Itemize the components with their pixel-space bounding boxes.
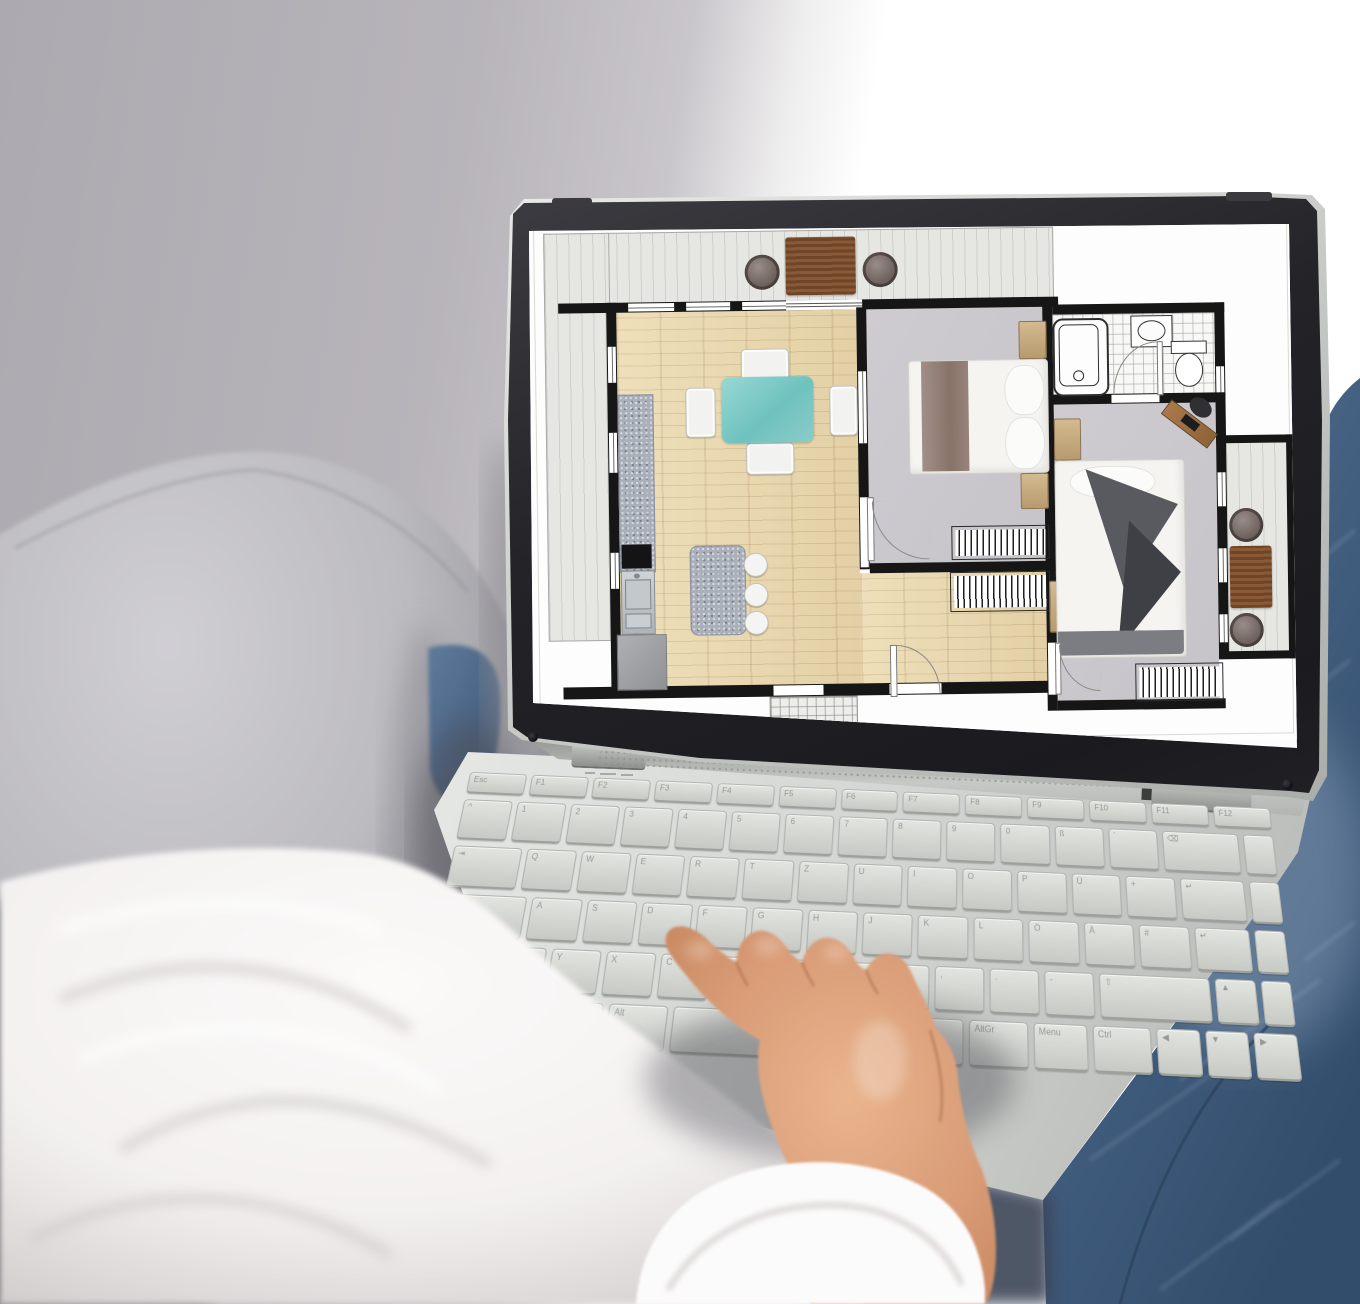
window (686, 302, 730, 311)
keyboard-key: A (525, 897, 583, 943)
keyboard-key: Ctrl (413, 995, 487, 1045)
window (608, 347, 617, 383)
keyboard-key (1260, 981, 1296, 1028)
keyboard-key (1248, 881, 1283, 925)
terrace-sliding-door (786, 299, 862, 310)
keyboard-key: Win (543, 1001, 604, 1050)
bedroom2-bed (1054, 459, 1187, 659)
keyboard-key: - (1044, 971, 1095, 1019)
balcony-table (1230, 546, 1273, 609)
window (1219, 548, 1227, 582)
dining-chair (685, 387, 716, 437)
nightstand (1018, 321, 1047, 359)
keyboard-key: H (805, 910, 858, 956)
keyboard-key: Menu (1033, 1023, 1088, 1073)
keyboard-key: ▶ (1254, 1033, 1303, 1083)
bathtub-drain (1073, 370, 1084, 381)
keyboard-key: ▲ (1215, 978, 1260, 1025)
window (1219, 614, 1227, 642)
keyboard-key: G (749, 907, 803, 953)
bedroom1-bed (908, 359, 1050, 475)
basin-bowl (1137, 320, 1165, 341)
keyboard-key (1254, 930, 1290, 975)
keyboard-key: P (1017, 871, 1068, 915)
window (611, 553, 620, 589)
keyboard-key: ◀ (1156, 1028, 1203, 1077)
keyboard-key: J (861, 912, 913, 958)
keyboard-key: # (1139, 925, 1192, 971)
keyboard-key: F (693, 905, 748, 951)
balcony-wall-top (1216, 434, 1294, 443)
keyboard-key: Alt (603, 1003, 668, 1053)
keyboard-key: R (686, 856, 740, 900)
keyboard-key: T (741, 858, 794, 902)
radiator (950, 571, 1051, 612)
keyboard-key: < (490, 946, 548, 993)
dining-chair (746, 442, 794, 475)
kitchen-island (689, 545, 746, 636)
keyboard-key: ▼ (1205, 1030, 1253, 1079)
lid-bumper (552, 198, 592, 207)
pillow (1004, 365, 1045, 416)
sink-basin (625, 579, 651, 609)
window (1218, 472, 1226, 506)
nightstand (1054, 418, 1082, 460)
keyboard-key: V (712, 956, 766, 1003)
lid-bumper (1226, 192, 1272, 201)
balcony-wall-bottom (1219, 650, 1297, 659)
laptop-screen-assembly (500, 190, 1330, 850)
keyboard-key (669, 1006, 964, 1066)
keyboard-key: . (990, 968, 1040, 1016)
window (609, 433, 618, 473)
keyboard-key: ⇧ (1099, 973, 1214, 1024)
entry-door-opening (773, 685, 823, 696)
terrace-deck-table (785, 236, 856, 295)
keyboard-key: Fn (483, 998, 545, 1047)
keyboard-key: X (601, 951, 657, 998)
webcam-dot (528, 732, 538, 742)
floor-plan (527, 215, 1306, 750)
terrace-left (543, 233, 615, 642)
pillow (1005, 417, 1046, 470)
keyboard-key: ⇪ (435, 893, 527, 940)
keyboard-key: Z (796, 861, 848, 905)
bathtub (1052, 318, 1109, 397)
keyboard-key: ↵ (1180, 878, 1248, 923)
keyboard-key: Ä (1084, 922, 1136, 968)
nightstand (1020, 473, 1048, 509)
dining-table (721, 376, 814, 443)
toilet (1171, 341, 1208, 389)
keyboard-key: , (934, 966, 984, 1014)
kitchen-sink (621, 570, 656, 634)
keyboard-key: E (631, 853, 686, 897)
keyboard-key: M (879, 963, 930, 1011)
keyboard-key: I (907, 866, 957, 910)
keyboard-key: D (637, 902, 693, 948)
radiator (1135, 662, 1224, 701)
keyboard-key: Ö (1029, 920, 1081, 966)
keyboard-key: Q (520, 849, 577, 893)
keyboard-key: ⇧ (424, 943, 492, 991)
keyboard-key: Ctrl (1092, 1025, 1154, 1075)
keyboard-key: U (852, 863, 903, 907)
keyboard-key: Ü (1071, 873, 1123, 917)
keyboard-key: B (767, 958, 820, 1006)
cooktop (621, 544, 651, 568)
interior-window (858, 371, 867, 443)
bed-runner (921, 361, 970, 472)
keyboard-key: AltGr (969, 1020, 1029, 1070)
radiator (951, 525, 1049, 560)
screw-dot (1282, 779, 1293, 790)
fridge-cabinet (617, 634, 668, 691)
keyboard-key: C (656, 953, 711, 1000)
photo-scene: EscF1F2F3F4F5F6F7F8F9F10F11F12^123456789… (0, 0, 1360, 1304)
keyboard-key: ↵ (1194, 927, 1253, 973)
keyboard-key: O (962, 868, 1012, 912)
keyboard-key: Y (545, 948, 602, 995)
window (628, 303, 674, 312)
keyboard-key: + (1125, 876, 1177, 920)
sink-drainboard (625, 613, 651, 628)
faucet (634, 573, 640, 578)
dining-chair (829, 385, 858, 435)
keyboard-key: K (917, 915, 968, 961)
window (742, 301, 792, 310)
keyboard-key: N (823, 961, 875, 1009)
keyboard-key: ⇥ (446, 845, 523, 890)
keyboard-key: L (973, 917, 1024, 963)
keyboard-key: W (576, 851, 632, 895)
keyboard-key: S (581, 900, 638, 946)
bathroom-door-opening (1111, 394, 1159, 403)
